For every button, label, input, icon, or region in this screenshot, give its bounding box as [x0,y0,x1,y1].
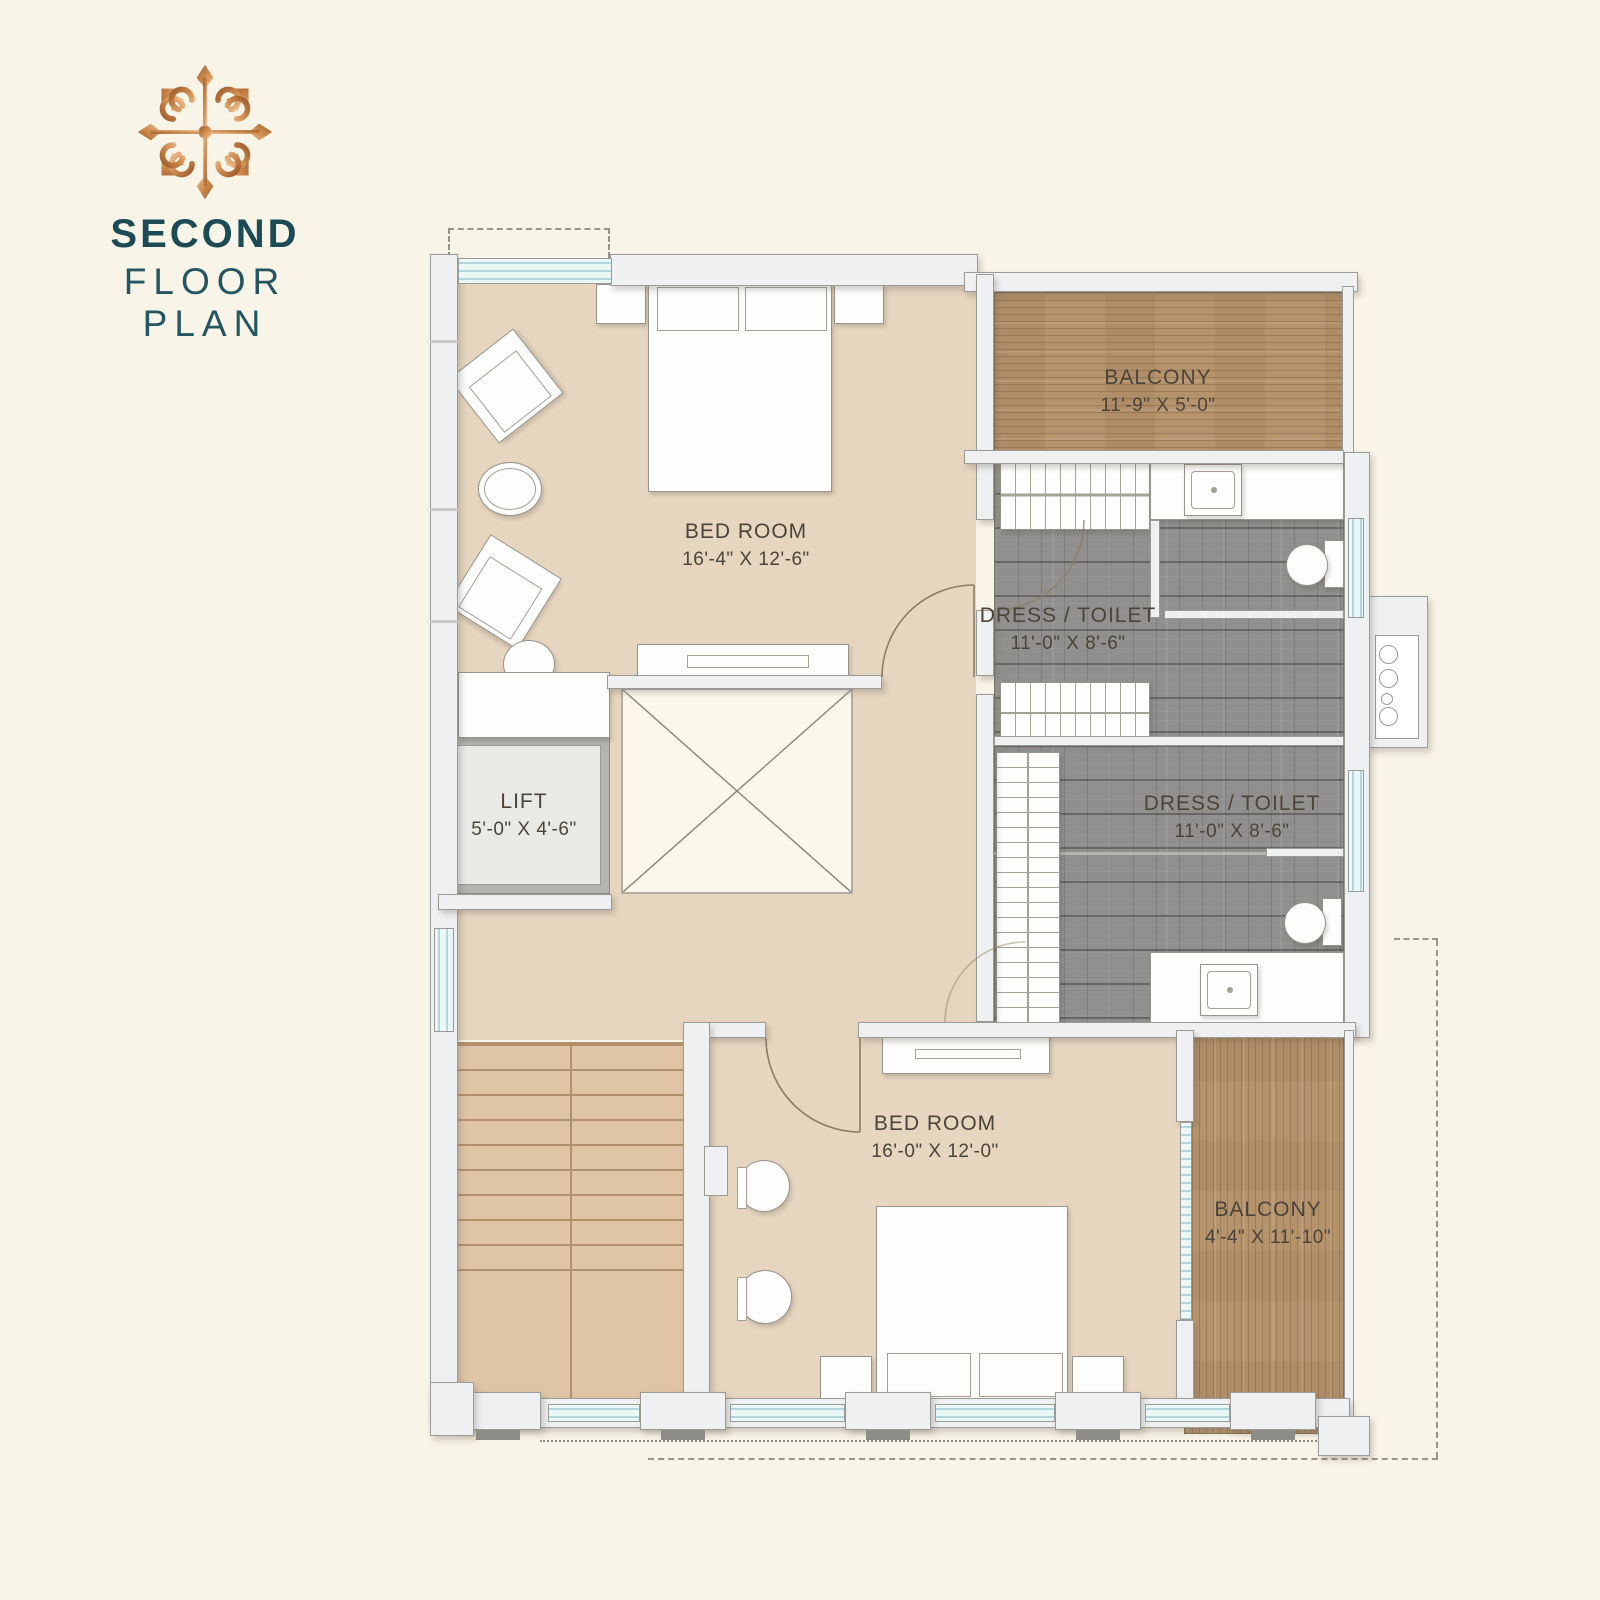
wardrobe-icon [1000,460,1150,530]
wall-segment [706,1022,766,1038]
corner-column [1318,1416,1370,1456]
tv-unit-icon [637,644,849,676]
wall-segment [607,675,882,689]
dotted-plinth-line [540,1440,1360,1442]
window-glass [1180,1122,1192,1320]
room-dims: 16'-0" X 12'-0" [871,1141,999,1163]
pillow-icon [657,287,739,331]
dashed-boundary [1394,938,1438,940]
balcony-rail [1342,286,1354,456]
wall-segment [1164,610,1344,619]
pilaster-foot [476,1430,520,1440]
washbasin-icon [1184,464,1242,516]
pilaster-foot [1251,1430,1295,1440]
window-glass [458,258,612,284]
window-glass [548,1404,640,1422]
wall-segment [994,736,1344,746]
window-glass [1348,770,1364,892]
wall-joint [430,620,458,623]
staircase [458,1042,683,1408]
pilaster [1055,1392,1141,1430]
dashed-boundary [1436,940,1438,1458]
room-name: BALCONY [1205,1198,1331,1222]
wardrobe-icon [996,752,1060,1024]
dashed-boundary [648,1458,1438,1460]
wardrobe-icon [1000,682,1150,744]
bedroom2-label: BED ROOM 16'-0" X 12'-0" [871,1112,999,1163]
balcony1-label: BALCONY 11'-9" X 5'-0" [1100,366,1215,417]
washbasin-icon [1200,964,1258,1016]
round-chair-icon [738,1160,790,1212]
dress-toilet2-label: DRESS / TOILET 11'-0" X 8'-6" [1144,792,1321,843]
duct-shaft-icon [1366,596,1428,748]
pilaster [845,1392,931,1430]
page-title-line2: FLOOR PLAN [85,261,325,345]
window-glass [434,928,454,1032]
wardrobe-icon [882,1032,1050,1074]
window-glass [730,1404,845,1422]
pilaster-foot [661,1430,705,1440]
chair-back [737,1167,747,1209]
corner-column [430,1382,474,1436]
dressing-table-icon [458,672,610,738]
wall-top-balcony1 [964,272,1358,292]
toilet-icon [1286,544,1328,586]
pipe-icon [1381,693,1393,705]
wall-segment [683,1022,710,1412]
basin-drain [1211,487,1217,493]
balcony2-label: BALCONY 4'-4" X 11'-10" [1205,1198,1331,1249]
pillow-icon [745,287,827,331]
window-glass [1145,1404,1230,1422]
side-table-top [484,468,536,510]
vanity-counter [1150,460,1344,520]
wall-joint [430,340,458,343]
room-dims: 11'-0" X 8'-6" [1144,821,1321,843]
page-title-line1: SECOND [85,212,325,257]
nightstand-icon [834,284,884,324]
room-dims: 11'-9" X 5'-0" [1100,395,1215,417]
pilaster-foot [1076,1430,1120,1440]
room-dims: 11'-0" X 8'-6" [980,633,1157,655]
pipe-icon [1379,645,1398,664]
bedroom1-label: BED ROOM 16'-4" X 12'-6" [682,520,810,571]
pilaster-foot [866,1430,910,1440]
bed-icon [876,1206,1068,1402]
room-dims: 16'-4" X 12'-6" [682,549,810,571]
wardrobe-handle [915,1049,1021,1059]
pillow-icon [887,1353,971,1397]
pillow-icon [979,1353,1063,1397]
room-name: BED ROOM [871,1112,999,1136]
basin-drain [1227,987,1233,993]
round-chair-icon [738,1270,792,1324]
window-glass [935,1404,1055,1422]
bed-icon [648,280,832,492]
wall-segment [976,694,994,1022]
wall-segment [858,1022,1356,1038]
toilet-icon [1284,902,1326,944]
dashed-projection [448,228,610,258]
lift-label: LIFT 5'-0" X 4'-6" [471,790,576,841]
room-name: LIFT [471,790,576,814]
pilaster [640,1392,726,1430]
balcony-rail [1344,1030,1354,1434]
wall-left [430,254,458,1414]
room-name: BED ROOM [682,520,810,544]
void-cutout [621,688,853,894]
wall-top-bedroom1 [610,254,978,286]
wall-segment [438,894,612,910]
wall-segment [976,274,994,520]
room-name: BALCONY [1100,366,1215,390]
room-dims: 4'-4" X 11'-10" [1205,1227,1331,1249]
nightstand-icon [596,284,646,324]
chair-back [737,1277,747,1321]
dress-toilet1-label: DRESS / TOILET 11'-0" X 8'-6" [980,604,1157,655]
wall-joint [430,508,458,511]
wall-segment [1266,848,1344,857]
stair-center-divider [570,1044,572,1410]
window-glass [1348,518,1364,618]
pipe-icon [1379,707,1398,726]
pilaster [1230,1392,1316,1430]
side-table-icon [478,462,542,516]
room-dims: 5'-0" X 4'-6" [471,819,576,841]
tv-icon [687,655,809,668]
room-name: DRESS / TOILET [1144,792,1321,816]
wall-pier [704,1146,728,1196]
ornament-medallion-icon [130,62,280,202]
brand-block: SECOND FLOOR PLAN [85,62,325,345]
room-name: DRESS / TOILET [980,604,1157,628]
wall-segment [1176,1030,1194,1122]
pipe-icon [1379,669,1398,688]
wall-segment [964,450,1344,464]
floor-plan-page: SECOND FLOOR PLAN [0,0,1600,1600]
